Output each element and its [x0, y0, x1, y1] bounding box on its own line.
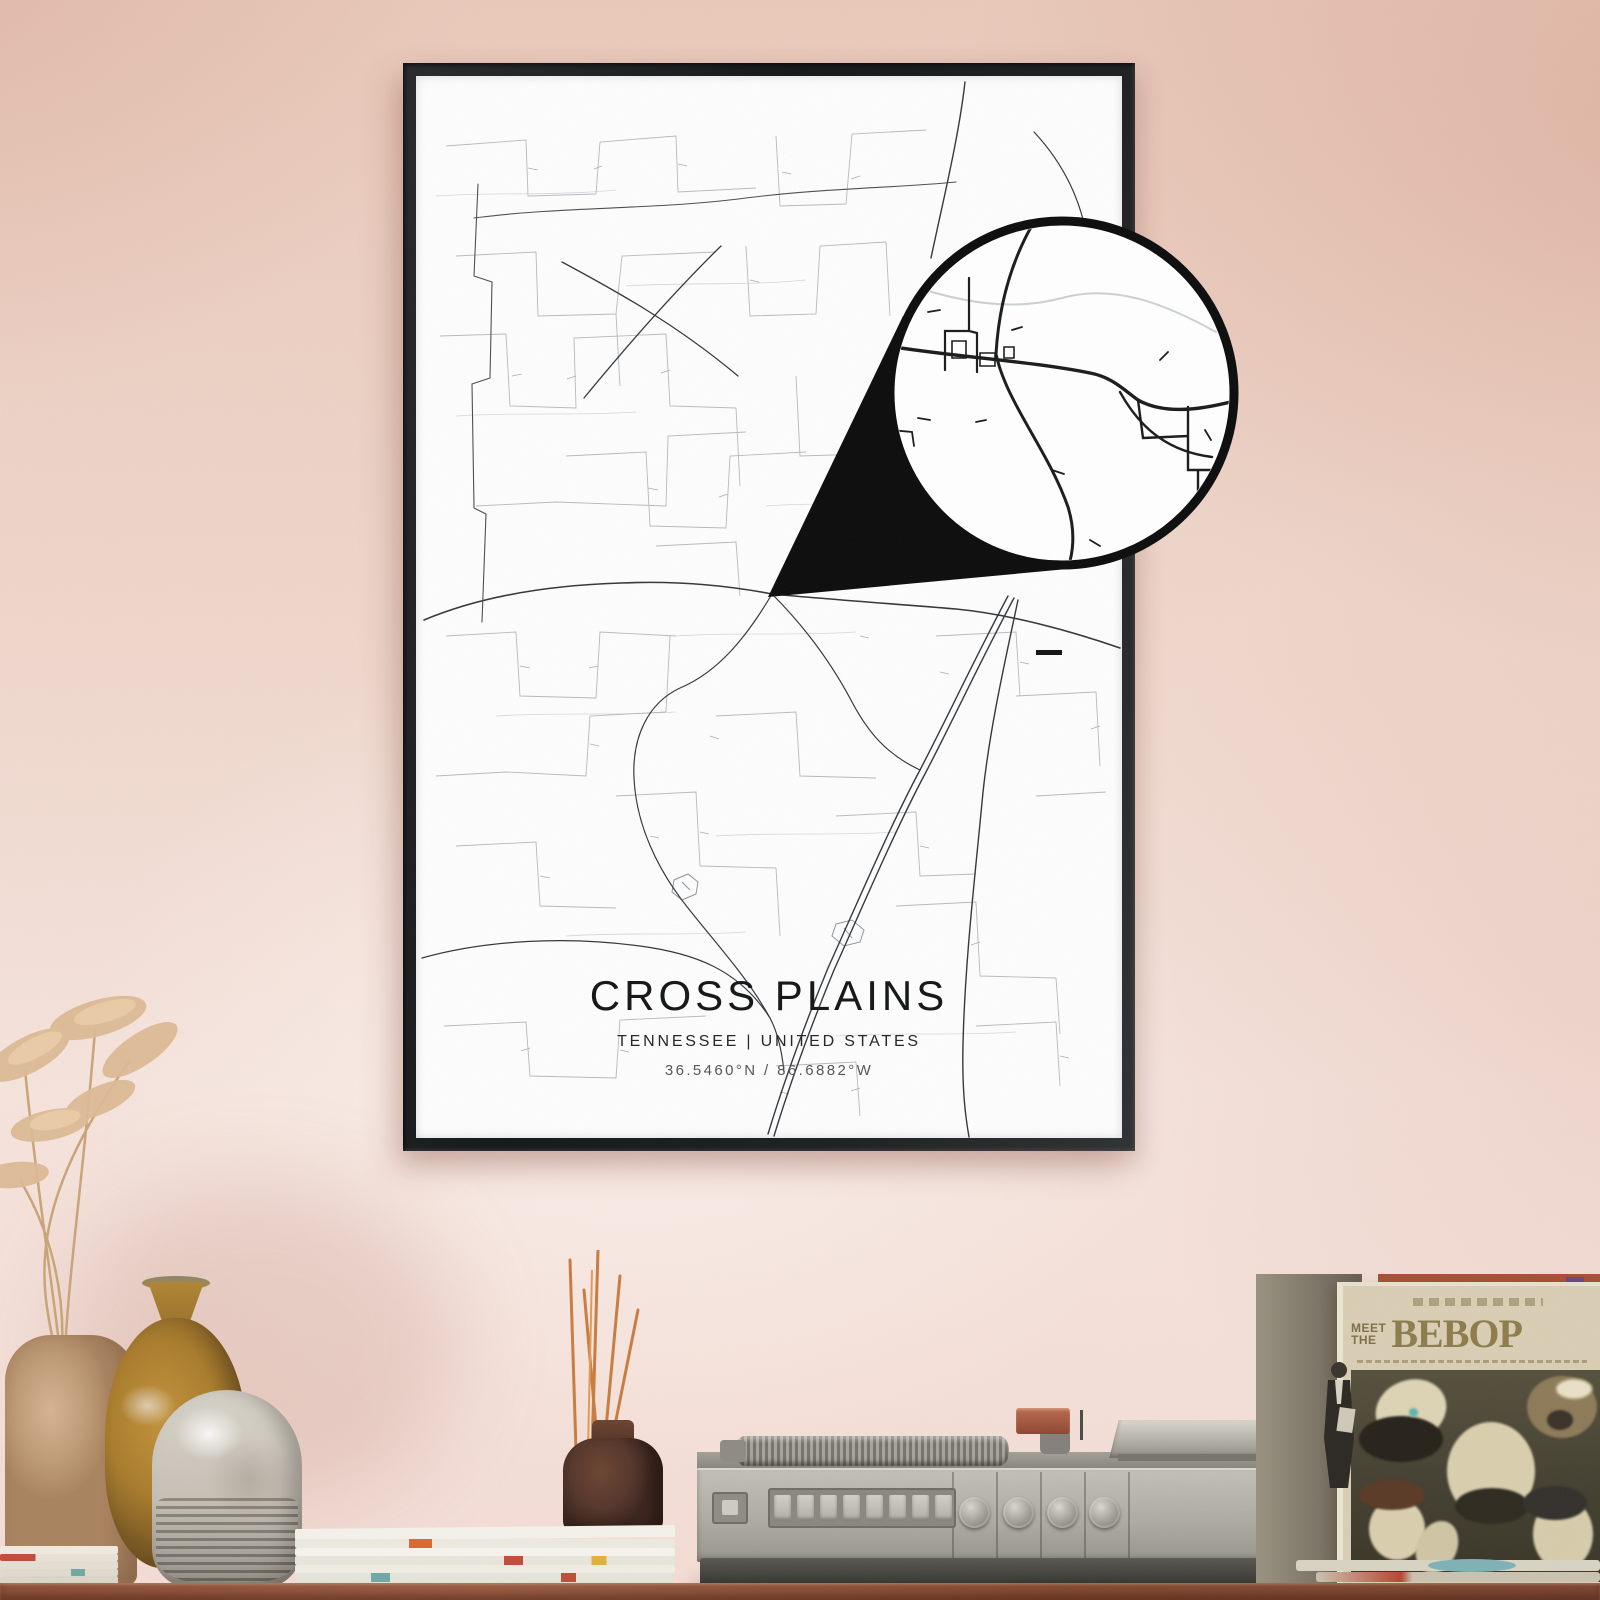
pampas-grass: [0, 950, 260, 1350]
turntable-platter: [735, 1436, 1009, 1466]
suit-figurine: [1314, 1360, 1364, 1490]
tonearm-cartridge: [1016, 1408, 1070, 1434]
map-roads-minor: [436, 130, 1106, 1116]
poster-subtitle: TENNESSEE | UNITED STATES: [416, 1033, 1122, 1051]
bass-knob: [1047, 1497, 1078, 1528]
label-logo-oval: [1555, 1378, 1593, 1400]
preset-button: [820, 1495, 837, 1521]
sleeve-meet-the: MEETTHE: [1351, 1322, 1386, 1346]
sleeve-title-row: MEETTHE BEBOP: [1351, 1316, 1522, 1352]
power-button-cap: [722, 1500, 738, 1515]
turntable-corner: [720, 1440, 746, 1462]
preset-button: [889, 1495, 906, 1521]
paper: [0, 1554, 118, 1561]
beard-blob: [1455, 1488, 1529, 1524]
magazine: [295, 1548, 675, 1556]
flat-record-teal: [1428, 1559, 1516, 1572]
preset-button: [935, 1495, 952, 1521]
wood-sideboard-top: [0, 1583, 1600, 1600]
poster-text-block: CROSS PLAINS TENNESSEE | UNITED STATES 3…: [416, 972, 1122, 1079]
sleeve-photo-area: [1351, 1370, 1600, 1582]
poster-title: CROSS PLAINS: [416, 972, 1122, 1020]
panel-divider: [1040, 1472, 1042, 1558]
preset-button: [774, 1495, 791, 1521]
map-poster: CROSS PLAINS TENNESSEE | UNITED STATES 3…: [416, 76, 1122, 1138]
poster-frame: CROSS PLAINS TENNESSEE | UNITED STATES 3…: [403, 63, 1135, 1151]
magazine: [295, 1565, 675, 1573]
stoneware-vase-ribs: [156, 1498, 298, 1582]
flat-record: [1316, 1572, 1600, 1582]
magazine: [295, 1556, 675, 1565]
product-photo-scene: CROSS PLAINS TENNESSEE | UNITED STATES 3…: [0, 0, 1600, 1600]
magazine: [295, 1539, 675, 1548]
paper: [0, 1546, 118, 1554]
panel-divider: [996, 1472, 998, 1558]
map-roads-faint: [436, 190, 1096, 1036]
hair-blob: [1523, 1486, 1587, 1520]
tonearm-pin: [1080, 1410, 1083, 1440]
magazine: [295, 1573, 675, 1582]
volume-knob: [959, 1497, 990, 1528]
hair-blob: [1359, 1416, 1443, 1462]
sleeve-small-print: [1413, 1298, 1543, 1306]
record-sleeve: MEETTHE BEBOP: [1337, 1282, 1600, 1590]
treble-knob: [1089, 1497, 1120, 1528]
dog-snout: [1547, 1410, 1573, 1430]
sleeve-title: BEBOP: [1391, 1316, 1522, 1352]
map-subdivision-loops: [672, 874, 864, 946]
poster-coordinates: 36.5460°N / 86.6882°W: [416, 1062, 1122, 1079]
map-dash-mark: [1036, 650, 1062, 655]
preset-button: [843, 1495, 860, 1521]
preset-button: [797, 1495, 814, 1521]
preset-button: [866, 1495, 883, 1521]
eye-highlight: [1409, 1408, 1418, 1417]
panel-divider: [1128, 1472, 1130, 1558]
panel-divider: [1084, 1472, 1086, 1558]
reed-diffuser-bottle: [563, 1438, 663, 1534]
paper: [0, 1569, 118, 1576]
preset-button: [912, 1495, 929, 1521]
tuning-knob: [1003, 1497, 1034, 1528]
hair-blob: [1359, 1480, 1425, 1510]
sleeve-credit-line: [1357, 1360, 1587, 1363]
paper: [0, 1561, 118, 1569]
